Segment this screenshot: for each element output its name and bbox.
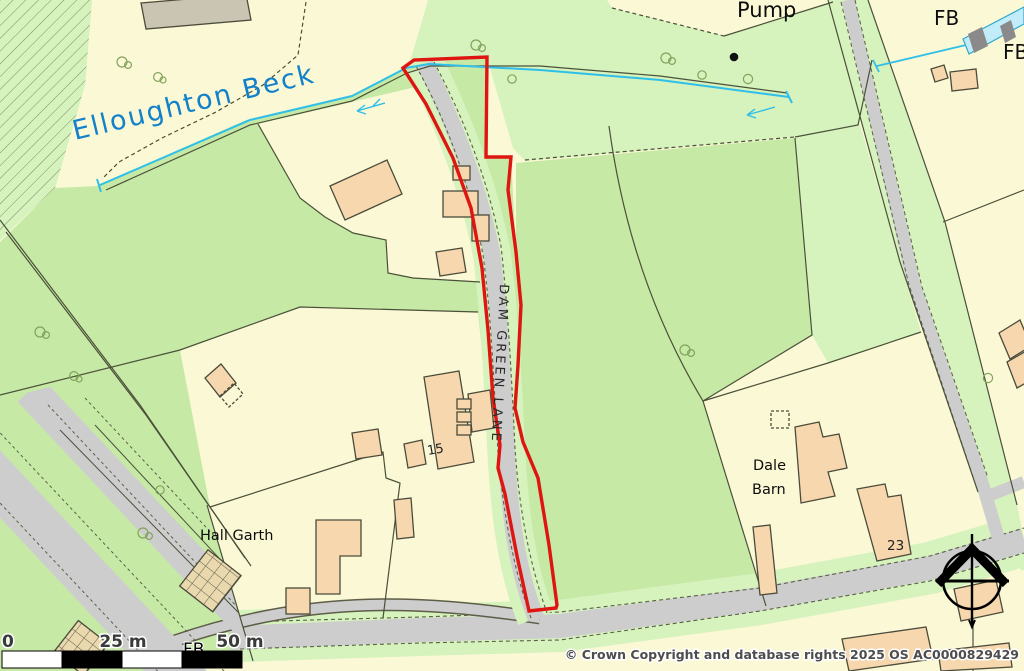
pump-label: Pump bbox=[737, 0, 796, 22]
fb-label: FB bbox=[934, 6, 959, 30]
house-number-label: 23 bbox=[887, 538, 904, 554]
hall-garth-label: Hall Garth bbox=[200, 528, 273, 544]
fb-label: FB bbox=[1003, 40, 1024, 64]
pump-marker-icon bbox=[730, 53, 739, 62]
scale-tick: 0 bbox=[2, 632, 14, 652]
dale-label: Dale bbox=[753, 458, 786, 474]
copyright-notice: © Crown Copyright and database rights 20… bbox=[565, 647, 1019, 662]
barn-label: Barn bbox=[752, 482, 786, 498]
house-number-label: 15 bbox=[426, 441, 445, 459]
scale-tick: 50 m bbox=[216, 632, 263, 652]
os-map: Elloughton Beck Pump FB FB DAM GREEN LAN… bbox=[0, 0, 1024, 671]
map-canvas[interactable]: Elloughton Beck Pump FB FB DAM GREEN LAN… bbox=[0, 0, 1024, 671]
scale-tick: 25 m bbox=[99, 632, 146, 652]
